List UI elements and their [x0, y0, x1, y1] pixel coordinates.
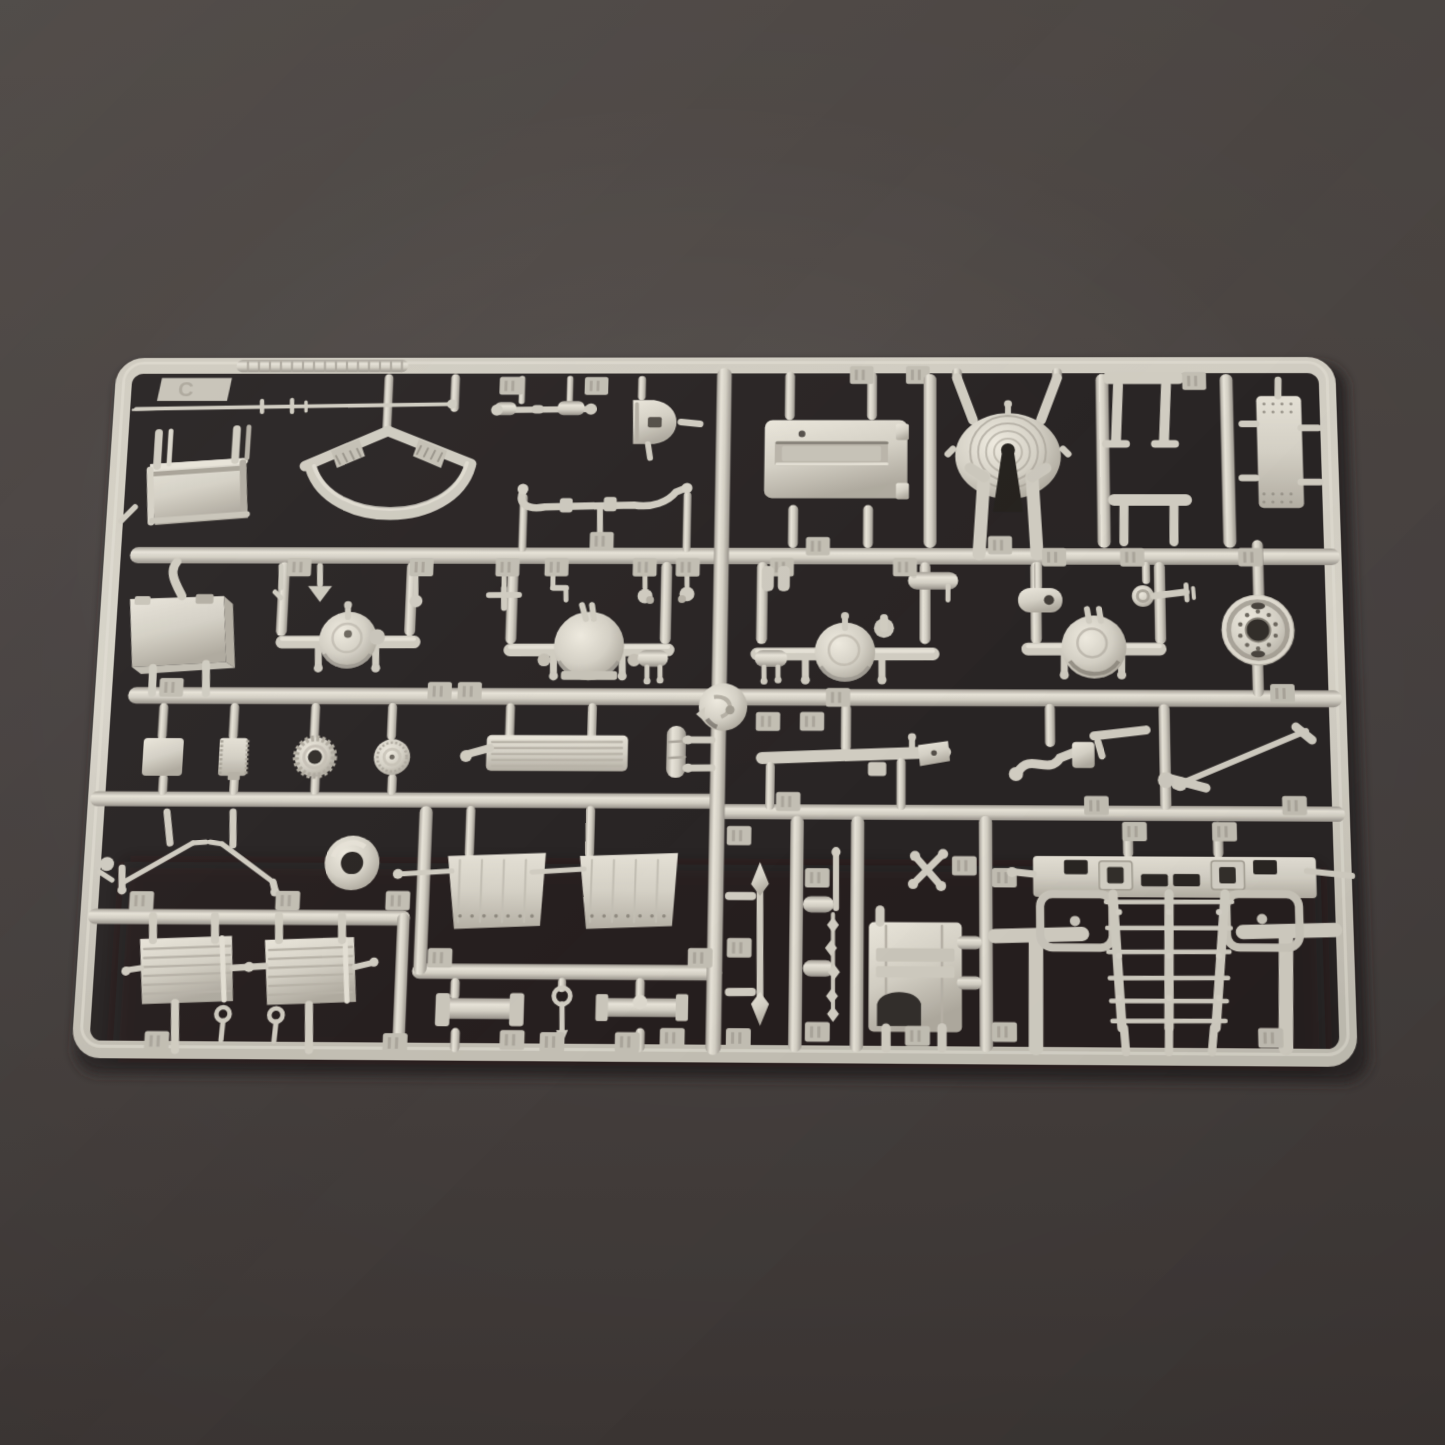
- svg-text:C: C: [177, 378, 194, 401]
